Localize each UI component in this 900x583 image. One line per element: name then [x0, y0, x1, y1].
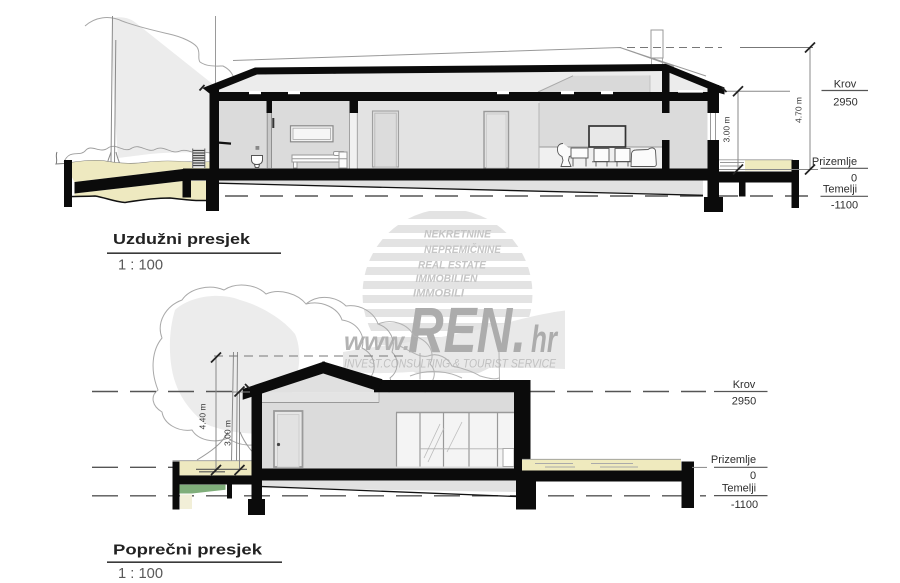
- svg-text:0: 0: [750, 470, 756, 482]
- svg-text:hr: hr: [531, 319, 559, 361]
- svg-text:Temelji: Temelji: [823, 184, 857, 196]
- svg-text:4.40 m: 4.40 m: [198, 404, 208, 430]
- svg-text:3.00 m: 3.00 m: [722, 117, 732, 143]
- svg-text:2950: 2950: [732, 396, 756, 408]
- svg-text:4.70 m: 4.70 m: [794, 97, 804, 123]
- svg-text:www.: www.: [344, 326, 410, 356]
- svg-text:Prizemlje: Prizemlje: [812, 156, 857, 168]
- svg-text:-1100: -1100: [731, 499, 758, 511]
- svg-text:REAL ESTATE: REAL ESTATE: [418, 259, 487, 271]
- svg-text:Prizemlje: Prizemlje: [711, 454, 756, 466]
- svg-text:Poprečni presjek: Poprečni presjek: [113, 542, 263, 559]
- svg-text:NEKRETNINE: NEKRETNINE: [424, 229, 492, 241]
- svg-text:1 : 100: 1 : 100: [118, 257, 163, 274]
- svg-text:Krov: Krov: [834, 79, 857, 91]
- svg-text:Uzdužni presjek: Uzdužni presjek: [113, 231, 251, 248]
- svg-text:-1100: -1100: [831, 200, 858, 212]
- svg-text:REN.: REN.: [408, 294, 526, 366]
- svg-text:Temelji: Temelji: [722, 483, 756, 495]
- svg-text:IMMOBILIEN: IMMOBILIEN: [416, 273, 479, 285]
- svg-text:NEPREMIČNINE: NEPREMIČNINE: [424, 243, 502, 256]
- svg-text:3.00 m: 3.00 m: [223, 420, 233, 446]
- svg-text:1 : 100: 1 : 100: [118, 565, 163, 582]
- svg-text:Krov: Krov: [733, 379, 756, 391]
- svg-text:2950: 2950: [833, 97, 857, 109]
